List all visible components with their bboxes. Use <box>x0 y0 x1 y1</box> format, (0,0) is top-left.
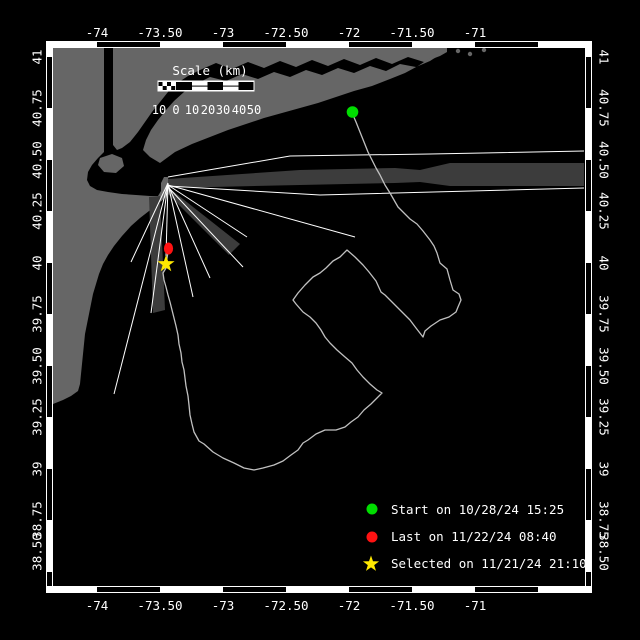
legend-last-label: Last on 11/22/24 08:40 <box>391 529 557 544</box>
scale-label-1: 0 <box>172 103 179 117</box>
legend-start-label: Start on 10/28/24 15:25 <box>391 502 564 517</box>
scale-label-4: 30 <box>216 103 230 117</box>
left-lat-label-6: 39.50 <box>30 347 45 385</box>
scale-segment-midline <box>192 86 208 87</box>
frame-segment <box>223 42 286 47</box>
right-lat-label-0: 41 <box>597 49 612 64</box>
legend-start-dot <box>367 504 378 515</box>
frame-bottom <box>46 586 592 593</box>
top-lon-label-4: -72 <box>338 25 361 40</box>
frame-segment <box>349 587 412 592</box>
left-lat-label-10: 38.50 <box>30 533 45 571</box>
land-island-1 <box>456 49 460 53</box>
left-lat-label-5: 39.75 <box>30 295 45 333</box>
frame-segment <box>349 42 412 47</box>
top-lon-label-2: -73 <box>212 25 235 40</box>
scale-hatch-cell <box>167 82 171 86</box>
left-lat-label-1: 40.75 <box>30 89 45 127</box>
bottom-lon-label-2: -73 <box>212 598 235 613</box>
frame-segment <box>586 57 591 108</box>
scale-hatch-cell <box>159 82 163 86</box>
bottom-lon-label-3: -72.50 <box>263 598 308 613</box>
right-lat-label-7: 39.25 <box>597 398 612 436</box>
right-lat-label-1: 40.75 <box>597 89 612 127</box>
frame-segment <box>47 263 52 314</box>
bottom-lon-label-1: -73.50 <box>137 598 182 613</box>
left-lat-label-7: 39.25 <box>30 398 45 436</box>
left-lat-label-8: 39 <box>30 461 45 476</box>
bottom-lon-label-0: -74 <box>86 598 109 613</box>
screenshot-root: -74 -73.50 -73 -72.50 -72 -71.50 -71 -74… <box>0 0 640 640</box>
scale-hatch-cell <box>163 86 167 90</box>
scale-label-6: 50 <box>247 103 261 117</box>
legend: Start on 10/28/24 15:25 Last on 11/22/24… <box>363 502 587 571</box>
top-lon-label-5: -71.50 <box>389 25 434 40</box>
scale-bar-title: Scale (km) <box>172 63 247 78</box>
frame-segment <box>97 42 160 47</box>
map-figure: -74 -73.50 -73 -72.50 -72 -71.50 -71 -74… <box>0 0 640 640</box>
scale-segment-black <box>176 82 192 90</box>
frame-segment <box>475 587 538 592</box>
scale-segment-midline <box>223 86 239 87</box>
frame-segment <box>586 366 591 417</box>
bottom-lon-label-6: -71 <box>464 598 487 613</box>
bottom-lon-label-4: -72 <box>338 598 361 613</box>
top-lon-label-1: -73.50 <box>137 25 182 40</box>
frame-segment <box>47 366 52 417</box>
top-lon-label-3: -72.50 <box>263 25 308 40</box>
legend-last-dot <box>367 532 378 543</box>
left-lat-label-4: 40 <box>30 255 45 270</box>
top-lon-label-0: -74 <box>86 25 109 40</box>
left-lat-label-3: 40.25 <box>30 192 45 230</box>
frame-segment <box>47 57 52 108</box>
right-lat-label-5: 39.75 <box>597 295 612 333</box>
frame-segment <box>586 469 591 520</box>
land-island-2 <box>468 52 472 56</box>
scale-label-5: 40 <box>232 103 246 117</box>
frame-segment <box>47 469 52 520</box>
scale-label-0: 10 <box>152 103 166 117</box>
right-lat-label-8: 39 <box>597 461 612 476</box>
start-marker[interactable] <box>347 106 359 118</box>
frame-right <box>585 41 592 593</box>
bottom-axis: -74 -73.50 -73 -72.50 -72 -71.50 -71 <box>86 598 487 613</box>
frame-left <box>46 41 53 593</box>
right-lat-label-10: 38.50 <box>597 533 612 571</box>
left-lat-label-2: 40.50 <box>30 141 45 179</box>
right-lat-label-4: 40 <box>597 255 612 270</box>
bottom-lon-label-5: -71.50 <box>389 598 434 613</box>
frame-segment <box>586 572 591 586</box>
frame-segment <box>47 572 52 586</box>
top-axis: -74 -73.50 -73 -72.50 -72 -71.50 -71 <box>86 25 487 40</box>
right-lat-label-3: 40.25 <box>597 192 612 230</box>
land-island-3 <box>482 48 486 52</box>
scale-hatch-cell <box>171 86 175 90</box>
last-marker[interactable] <box>164 243 173 255</box>
scale-label-2: 10 <box>185 103 199 117</box>
legend-selected-label: Selected on 11/21/24 21:10 <box>391 556 587 571</box>
frame-segment <box>97 587 160 592</box>
frame-segment <box>223 587 286 592</box>
right-lat-label-2: 40.50 <box>597 141 612 179</box>
right-lat-label-6: 39.50 <box>597 347 612 385</box>
top-lon-label-6: -71 <box>464 25 487 40</box>
scale-segment-black <box>239 82 254 90</box>
scale-segment-black <box>208 82 224 90</box>
frame-segment <box>586 263 591 314</box>
scale-label-3: 20 <box>201 103 215 117</box>
left-lat-label-0: 41 <box>30 49 45 64</box>
frame-segment <box>586 160 591 211</box>
frame-segment <box>47 160 52 211</box>
frame-top <box>46 41 592 48</box>
frame-segment <box>475 42 538 47</box>
